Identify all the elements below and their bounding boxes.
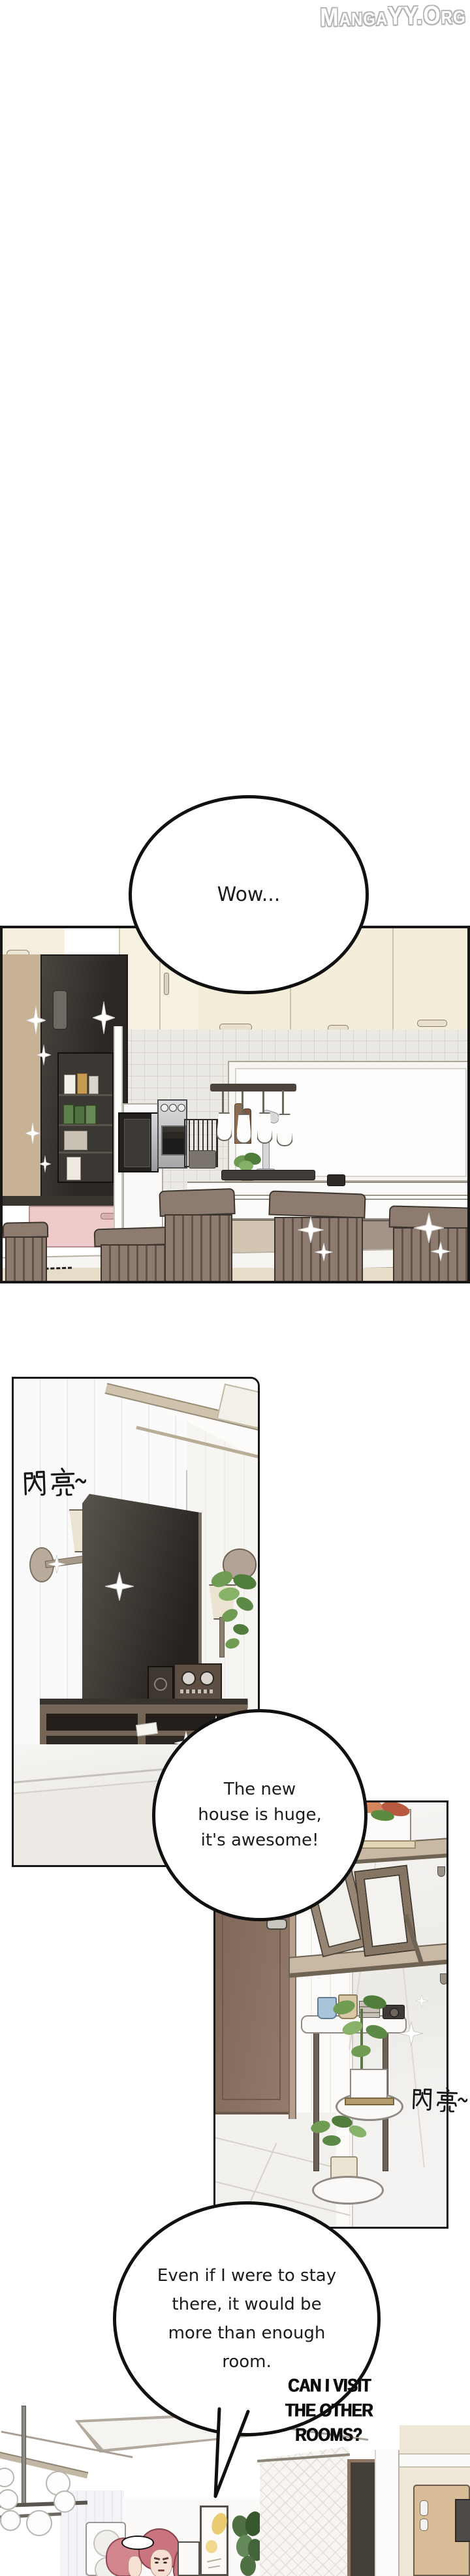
door-frame: [289, 1894, 296, 2119]
poster-frame-art: [200, 2505, 228, 2576]
speech-text: house is huge,: [198, 1802, 321, 1828]
glass-globe: [0, 2510, 21, 2531]
range-dial: [169, 1104, 177, 1112]
poster-yellow-blob: [206, 2540, 217, 2553]
leaf: [362, 1993, 387, 2011]
speech-text: The new: [224, 1777, 296, 1802]
poster-script-line: [207, 2558, 221, 2562]
fridge-side-panel: [3, 954, 42, 1197]
chair-slats: [5, 1236, 47, 1283]
eye: [155, 2562, 159, 2564]
fridge-shelf-line: [59, 1152, 112, 1154]
leaf: [351, 2044, 371, 2058]
dining-chair: [159, 1189, 236, 1283]
picture-frame: [355, 1866, 416, 1956]
tan-door: [413, 2485, 470, 2576]
speech-bubble-tail: [210, 2406, 256, 2499]
dining-chair: [3, 1222, 48, 1283]
range-dial: [161, 1104, 168, 1112]
cups: [189, 1150, 216, 1169]
hanging-plant: [207, 1542, 260, 1666]
sfx-sparkle-text-left: 閃亮~: [20, 1466, 87, 1500]
poster-frame: [178, 2541, 200, 2576]
eyebrow: [163, 2557, 168, 2560]
counter-strip-dark: [3, 1196, 123, 1206]
fridge-glass-door: [57, 1052, 114, 1183]
leaf: [219, 1607, 240, 1625]
poster-yellow-blob: [209, 2511, 229, 2536]
chair-rail: [3, 1221, 48, 1238]
milk-carton: [64, 1075, 76, 1094]
glass-globe: [54, 2490, 76, 2513]
sparkle-icon: [298, 1217, 324, 1243]
range-dial: [178, 1104, 185, 1112]
chandelier-pole: [22, 2406, 26, 2505]
wall-pillar: [375, 2450, 399, 2576]
speech-text: room.: [222, 2348, 272, 2376]
wine-glass: [222, 1092, 224, 1114]
wine-glass: [262, 1092, 264, 1114]
poster-script-line: [208, 2565, 220, 2568]
wine-glass: [282, 1090, 284, 1115]
sparkle-icon: [26, 1005, 46, 1035]
sparkle-icon: [93, 1001, 115, 1034]
door-dark-panel: [455, 2499, 470, 2542]
door-handle: [420, 2500, 428, 2516]
leaf: [232, 1623, 250, 1637]
sparkle-icon: [25, 1122, 40, 1145]
site-logo-text: MangaYY.Org: [320, 1, 466, 32]
leaf: [309, 2119, 331, 2135]
glass-globe: [26, 2510, 52, 2536]
speaker-box: [148, 1666, 174, 1703]
character-face: [150, 2549, 172, 2576]
eye: [163, 2562, 167, 2564]
webtoon-page: MangaYY.Org: [0, 0, 470, 2576]
speech-bubble-huge: The new house is huge, it's awesome!: [152, 1709, 368, 1921]
shelf-bracket: [440, 1973, 448, 1985]
cabinet-handle: [164, 973, 169, 995]
sparkle-icon: [415, 1994, 428, 2007]
kitchen-scale: [327, 1174, 345, 1186]
leaf: [322, 2135, 341, 2146]
cabinet-handle: [417, 1020, 447, 1027]
sparkle-icon: [39, 1155, 51, 1172]
fridge-handle: [53, 990, 67, 1029]
stove-hob: [221, 1170, 315, 1180]
oven-window: [161, 1125, 186, 1155]
sparkle-icon: [105, 1572, 134, 1601]
green-plant: [320, 1996, 398, 2074]
cabinet-door-seam: [392, 928, 394, 1031]
fridge-shelf-line: [59, 1094, 112, 1096]
wall-trim-band: [399, 2453, 470, 2468]
green-bottles: [74, 1106, 85, 1124]
square-planter: [350, 2069, 388, 2100]
speech-text: it's awesome!: [201, 1828, 319, 1853]
microwave: [118, 1112, 159, 1172]
sfx-sparkle-glyphs: [409, 2085, 467, 2113]
leaf: [332, 1998, 356, 2017]
site-logo: MangaYY.Org: [316, 1, 470, 33]
door-handle: [420, 2519, 428, 2531]
food-box: [89, 1076, 99, 1094]
speaker-ring: [154, 1678, 167, 1691]
shelf-bracket: [437, 1866, 445, 1877]
milk-carton: [67, 1157, 81, 1180]
room-door: [213, 1899, 291, 2114]
leaf: [240, 2556, 256, 2576]
chair-rail: [159, 1188, 235, 1217]
chair-rail: [268, 1190, 366, 1218]
plant-stem: [360, 2009, 363, 2074]
jar: [64, 1131, 87, 1150]
fridge-shelf-line: [59, 1124, 112, 1126]
glass-globe: [0, 2468, 14, 2487]
microwave-silver-edge: [151, 1114, 157, 1171]
sfx-sparkle-glyphs: [20, 1466, 86, 1497]
speech-bubble-wow: Wow...: [129, 795, 369, 994]
oven-range: [157, 1099, 187, 1169]
sfx-sparkle-text-right: 閃亮~: [409, 2085, 467, 2115]
reel: [200, 1671, 214, 1686]
sparkle-icon: [414, 1213, 444, 1243]
doorway-dark: [347, 2459, 375, 2576]
sparkle-icon: [431, 1242, 450, 1261]
leaf: [224, 1637, 241, 1650]
microwave-window: [124, 1119, 150, 1167]
speech-text: more than enough: [168, 2319, 326, 2348]
speech-text: Wow...: [217, 883, 281, 906]
sparkle-icon: [48, 1555, 66, 1573]
shout-text: CAN I VISIT THE OTHER ROOMS?: [272, 2374, 386, 2447]
mini-bubble: [121, 2536, 154, 2550]
deck-buttons: [180, 1689, 213, 1693]
green-bottles: [63, 1105, 74, 1124]
wine-glass: [242, 1092, 243, 1115]
shelf-cavity: [46, 1714, 138, 1731]
speech-text: Even if I were to stay: [157, 2261, 336, 2290]
mouth: [158, 2569, 164, 2571]
sparkle-icon: [37, 1045, 51, 1065]
round-table: [312, 2176, 384, 2205]
sparkle-icon: [399, 2022, 423, 2045]
planter-base-board: [345, 2097, 394, 2105]
sparkle-icon: [315, 1243, 333, 1261]
green-bottles: [86, 1105, 96, 1124]
speech-text: there, it would be: [172, 2290, 321, 2319]
tape-deck: [174, 1663, 222, 1703]
eyebrow: [154, 2557, 160, 2560]
reel: [181, 1671, 196, 1686]
diamond-pattern-wall: [260, 2443, 349, 2576]
door-inner-panel: [222, 1911, 281, 2100]
leaf: [364, 2022, 389, 2041]
food-box: [77, 1073, 87, 1094]
chair-slats: [164, 1214, 232, 1283]
leaf: [347, 2123, 368, 2139]
chandelier: [0, 2406, 91, 2536]
